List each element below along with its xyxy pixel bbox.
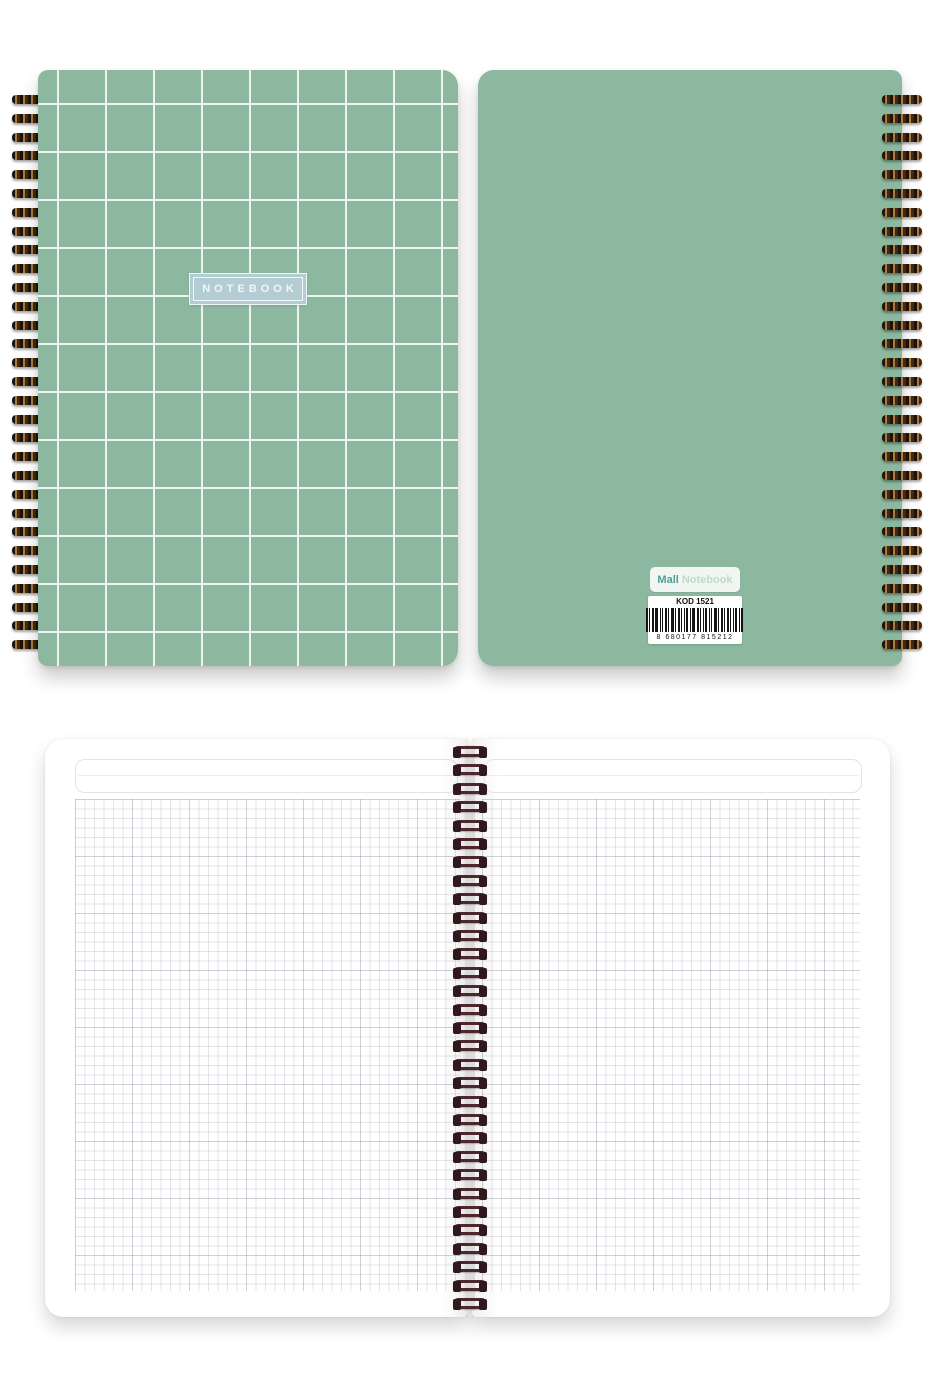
wire-loop-icon <box>453 1224 487 1235</box>
wire-loop-icon <box>453 1298 487 1309</box>
wire-coil-icon <box>882 452 922 461</box>
wire-coil-icon <box>882 490 922 499</box>
wire-loop-icon <box>453 1151 487 1162</box>
wire-coil-icon <box>882 95 922 104</box>
barcode-label: KOD 1521 8 680177 815212 <box>648 596 742 644</box>
barcode-bar <box>686 608 688 632</box>
wire-coil-icon <box>882 189 922 198</box>
wire-loop-icon <box>453 838 487 849</box>
notebook-product-photo: NOTEBOOK Mall Notebook KOD 1521 8 680177… <box>0 0 933 1400</box>
barcode-icon <box>646 608 745 632</box>
wire-loop-icon <box>453 1261 487 1272</box>
notebook-front: NOTEBOOK <box>8 70 458 666</box>
barcode-bar <box>739 608 740 632</box>
barcode-bar <box>741 608 743 632</box>
wire-loop-icon <box>453 1077 487 1088</box>
wire-loop-icon <box>453 1022 487 1033</box>
wire-coil-icon <box>882 114 922 123</box>
barcode-bar <box>649 608 650 632</box>
back-cover: Mall Notebook KOD 1521 8 680177 815212 <box>478 70 902 666</box>
barcode-bar <box>724 608 725 632</box>
wire-coil-icon <box>882 208 922 217</box>
barcode-bar <box>730 608 731 632</box>
wire-loop-icon <box>453 1040 487 1051</box>
barcode-bar <box>681 608 682 632</box>
barcode-bar <box>652 608 654 632</box>
wire-loop-icon <box>453 746 487 757</box>
wire-coil-icon <box>882 302 922 311</box>
open-page-left <box>45 739 468 1317</box>
wire-loop-icon <box>453 1004 487 1015</box>
barcode-code-text: KOD 1521 <box>676 597 714 607</box>
barcode-bar <box>714 608 717 632</box>
wire-coil-icon <box>882 603 922 612</box>
wire-loop-icon <box>453 875 487 886</box>
wire-loop-icon <box>453 856 487 867</box>
barcode-bar <box>697 608 699 632</box>
wire-loop-icon <box>453 930 487 941</box>
barcode-bar <box>709 608 710 632</box>
wire-loop-icon <box>453 1188 487 1199</box>
barcode-bar <box>665 608 667 632</box>
barcode-bar <box>678 608 680 632</box>
barcode-bar <box>705 608 707 632</box>
notebook-title-label-border: NOTEBOOK <box>193 277 303 301</box>
page-grid <box>75 799 460 1291</box>
wire-coil-icon <box>882 433 922 442</box>
barcode-bar <box>711 608 712 632</box>
open-page-right <box>472 739 890 1317</box>
barcode-bar <box>684 608 685 632</box>
barcode-bar <box>660 608 661 632</box>
wire-coil-icon <box>882 471 922 480</box>
wire-loop-icon <box>453 948 487 959</box>
barcode-bar <box>700 608 701 632</box>
wire-loop-icon <box>453 1169 487 1180</box>
wire-coil-icon <box>882 339 922 348</box>
notebook-title-label: NOTEBOOK <box>189 273 307 305</box>
wire-coil-icon <box>882 151 922 160</box>
barcode-bar <box>727 608 729 632</box>
wire-loop-icon <box>453 1206 487 1217</box>
wire-coil-icon <box>882 377 922 386</box>
wire-coil-icon <box>882 170 922 179</box>
wire-coil-icon <box>882 283 922 292</box>
wire-loop-icon <box>453 801 487 812</box>
front-cover: NOTEBOOK <box>38 70 458 666</box>
notebook-title-text: NOTEBOOK <box>198 283 298 295</box>
wire-loop-icon <box>453 783 487 794</box>
barcode-bar <box>703 608 704 632</box>
wire-loop-icon <box>453 985 487 996</box>
barcode-bar <box>646 608 648 632</box>
brand-product-text: Notebook <box>682 574 733 586</box>
barcode-bar <box>675 608 676 632</box>
wire-loop-icon <box>453 1114 487 1125</box>
wire-loop-icon <box>453 820 487 831</box>
barcode-bar <box>735 608 737 632</box>
barcode-bar <box>671 608 674 632</box>
wire-coil-icon <box>882 527 922 536</box>
barcode-bar <box>718 608 719 632</box>
wire-loop-icon <box>453 912 487 923</box>
wire-coil-icon <box>882 133 922 142</box>
wire-coil-icon <box>882 358 922 367</box>
wire-loop-icon <box>453 1132 487 1143</box>
page-grid <box>482 799 860 1291</box>
notebook-back: Mall Notebook KOD 1521 8 680177 815212 <box>478 70 925 666</box>
wire-loop-icon <box>453 967 487 978</box>
wire-coil-icon <box>882 565 922 574</box>
wire-coil-icon <box>882 415 922 424</box>
page-header-box <box>75 759 458 793</box>
wire-coil-icon <box>882 396 922 405</box>
covers-row: NOTEBOOK Mall Notebook KOD 1521 8 680177… <box>0 0 933 700</box>
wire-coil-icon <box>882 227 922 236</box>
barcode-bar <box>655 608 658 632</box>
wire-coil-icon <box>882 245 922 254</box>
barcode-bar <box>662 608 663 632</box>
wire-loop-icon <box>453 1059 487 1070</box>
wire-loop-icon <box>453 1243 487 1254</box>
wire-loop-icon <box>453 1280 487 1291</box>
barcode-bar <box>692 608 695 632</box>
brand-name-text: Mall <box>657 574 678 586</box>
wire-coil-icon <box>882 321 922 330</box>
wire-loop-icon <box>453 1096 487 1107</box>
wire-loop-icon <box>453 764 487 775</box>
wire-coil-icon <box>882 640 922 649</box>
barcode-number-text: 8 680177 815212 <box>657 633 734 642</box>
wire-coil-icon <box>882 264 922 273</box>
barcode-bar <box>668 608 669 632</box>
wire-coil-icon <box>882 621 922 630</box>
barcode-bar <box>733 608 734 632</box>
brand-label: Mall Notebook <box>650 567 740 592</box>
wire-coil-icon <box>882 509 922 518</box>
barcode-bar <box>690 608 691 632</box>
wire-loop-icon <box>453 893 487 904</box>
open-notebook <box>45 737 890 1320</box>
wire-coil-icon <box>882 546 922 555</box>
barcode-bar <box>721 608 723 632</box>
wire-coil-icon <box>882 584 922 593</box>
page-header-box <box>484 759 862 793</box>
